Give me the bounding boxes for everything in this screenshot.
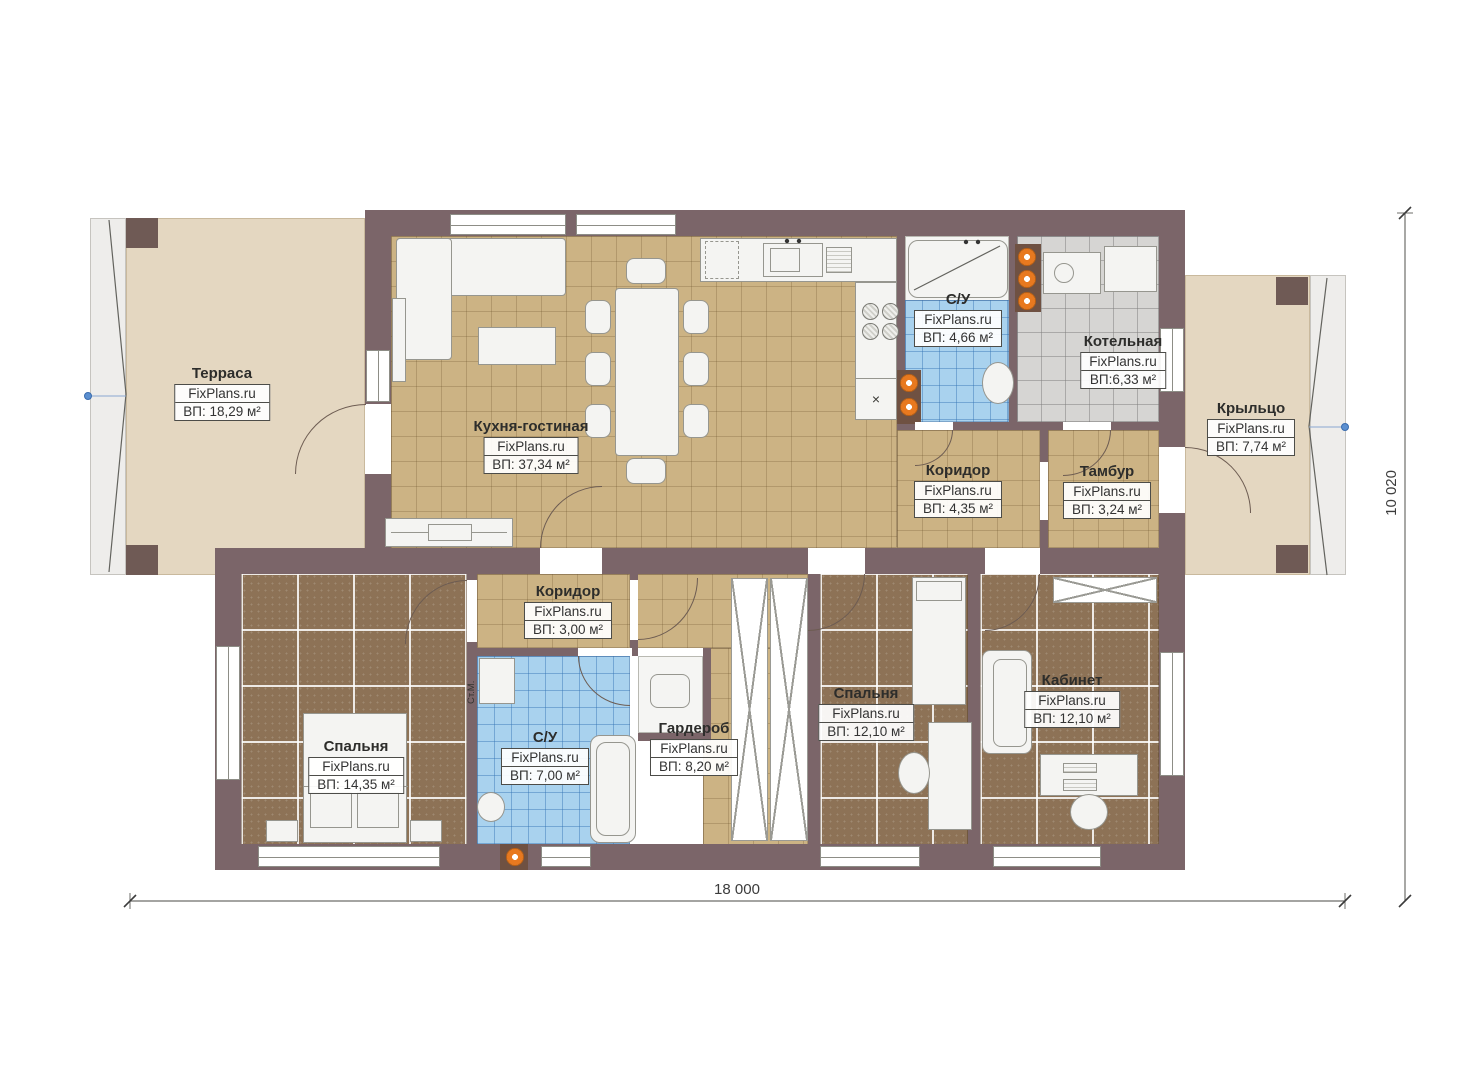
wardrobe-closet xyxy=(731,578,768,841)
room-area: ВП: 37,34 м² xyxy=(484,456,578,473)
room-area: ВП: 18,29 м² xyxy=(175,403,269,420)
watermark: FixPlans.ru xyxy=(525,603,611,621)
room-name: Спальня xyxy=(818,685,914,702)
heating-valve xyxy=(1018,270,1036,288)
door-opening-kitchen-corridor xyxy=(540,548,602,574)
tv-unit xyxy=(392,298,406,382)
drain-board xyxy=(826,247,852,273)
window-bedroom1-left xyxy=(216,646,240,780)
dining-chair xyxy=(585,404,611,438)
door-opening-bedroom2 xyxy=(808,548,865,574)
dimension-tick xyxy=(1339,895,1351,907)
axis-marker-left xyxy=(84,392,92,400)
dining-chair xyxy=(626,258,666,284)
watermark: FixPlans.ru xyxy=(175,385,269,403)
heating-valve xyxy=(1018,292,1036,310)
room-label-corridor-lower: Коридор FixPlans.ruВП: 3,00 м² xyxy=(524,583,612,639)
sideboard-radiator xyxy=(385,518,513,547)
window-living-left xyxy=(366,350,390,402)
room-area: ВП: 4,66 м² xyxy=(915,329,1001,346)
washer-drum xyxy=(1054,263,1074,283)
stove-burner xyxy=(862,323,879,340)
terrace-post-top xyxy=(126,218,158,248)
office-sofa-seat xyxy=(993,659,1027,747)
kitchen-sink-basin xyxy=(770,248,800,272)
kitchen-counter-corner: × xyxy=(855,378,897,420)
door-opening-wardrobe xyxy=(630,580,638,640)
terrace-stairs-strip xyxy=(90,218,126,575)
stove-burner xyxy=(882,303,899,320)
nightstand xyxy=(410,820,442,842)
towel-radiator xyxy=(506,848,524,866)
pillow xyxy=(310,792,352,828)
bathtub-lower xyxy=(590,735,636,843)
toilet xyxy=(650,674,690,708)
porch-post-bottom xyxy=(1276,545,1308,573)
room-name: Гардероб xyxy=(650,720,738,737)
pillow xyxy=(357,792,399,828)
door-opening-bathroom-upper xyxy=(915,422,953,430)
coffee-table xyxy=(478,327,556,365)
floor-plan-canvas: × xyxy=(0,0,1474,1080)
dimension-height-label: 10 020 xyxy=(1383,470,1400,516)
watermark: FixPlans.ru xyxy=(651,740,737,758)
window-office-right xyxy=(1160,652,1184,776)
room-label-corridor-upper: Коридор FixPlans.ruВП: 4,35 м² xyxy=(914,462,1002,518)
window-office-bottom xyxy=(993,846,1101,867)
room-area: ВП: 14,35 м² xyxy=(309,776,403,793)
boiler-counter xyxy=(1104,246,1157,292)
room-name: Спальня xyxy=(308,738,404,755)
room-name: Тамбур xyxy=(1063,463,1151,480)
door-opening-office xyxy=(985,548,1040,574)
room-name: Кабинет xyxy=(1024,672,1120,689)
washing-machine xyxy=(479,658,515,704)
pillow xyxy=(916,581,962,601)
watermark: FixPlans.ru xyxy=(309,758,403,776)
room-label-bedroom2: Спальня FixPlans.ruВП: 12,10 м² xyxy=(818,685,914,741)
office-closet xyxy=(1053,577,1157,603)
desk-bedroom2 xyxy=(928,722,972,830)
heating-valve xyxy=(900,374,918,392)
watermark: FixPlans.ru xyxy=(1208,420,1294,438)
chair-bedroom2 xyxy=(898,752,930,794)
fridge xyxy=(705,241,739,279)
dimension-tick xyxy=(124,895,136,907)
office-chair xyxy=(1070,794,1108,830)
room-area: ВП: 4,35 м² xyxy=(915,500,1001,517)
window-kitchen-top xyxy=(576,214,676,235)
nightstand xyxy=(266,820,298,842)
porch-post-top xyxy=(1276,277,1308,305)
desk-items xyxy=(1063,763,1097,773)
door-opening-bedroom1 xyxy=(467,580,477,642)
dimension-tick xyxy=(1399,895,1411,907)
stove-burner xyxy=(862,303,879,320)
room-area: ВП: 8,20 м² xyxy=(651,758,737,775)
room-name: Кухня-гостиная xyxy=(474,418,589,435)
dining-chair xyxy=(683,300,709,334)
room-label-wardrobe: Гардероб FixPlans.ruВП: 8,20 м² xyxy=(650,720,738,776)
room-name: Крыльцо xyxy=(1207,400,1295,417)
room-area: ВП: 3,24 м² xyxy=(1064,501,1150,518)
room-name: С/У xyxy=(914,291,1002,308)
room-area: ВП: 7,00 м² xyxy=(502,767,588,784)
door-opening-terrace xyxy=(365,404,391,474)
room-label-kitchen-living: Кухня-гостиная FixPlans.ruВП: 37,34 м² xyxy=(474,418,589,474)
room-name: Коридор xyxy=(524,583,612,600)
watermark: FixPlans.ru xyxy=(1064,483,1150,501)
dining-chair xyxy=(683,404,709,438)
room-label-bedroom1: Спальня FixPlans.ruВП: 14,35 м² xyxy=(308,738,404,794)
room-area: ВП: 3,00 м² xyxy=(525,621,611,638)
window-bedroom2-bottom xyxy=(820,846,920,867)
dimension-width-label: 18 000 xyxy=(714,881,760,898)
office-desk xyxy=(1040,754,1138,796)
room-label-terrace: Терраса FixPlans.ruВП: 18,29 м² xyxy=(174,365,270,421)
bed-bedroom2 xyxy=(912,577,966,705)
dining-chair xyxy=(626,458,666,484)
dining-table xyxy=(615,288,679,456)
room-label-porch: Крыльцо FixPlans.ruВП: 7,74 м² xyxy=(1207,400,1295,456)
room-area: ВП: 12,10 м² xyxy=(1025,710,1119,727)
bathtub-inner xyxy=(596,742,630,836)
room-area: ВП: 7,74 м² xyxy=(1208,438,1294,455)
wardrobe-closet xyxy=(770,578,808,841)
room-label-bathroom-upper: С/У FixPlans.ruВП: 4,66 м² xyxy=(914,291,1002,347)
stove-burner xyxy=(882,323,899,340)
dining-chair xyxy=(585,352,611,386)
shower-tub-upper xyxy=(908,240,1008,298)
dining-chair xyxy=(585,300,611,334)
watermark: FixPlans.ru xyxy=(915,311,1001,329)
room-label-bathroom-lower: С/У FixPlans.ruВП: 7,00 м² xyxy=(501,729,589,785)
window-bathroom-lower-bottom xyxy=(541,846,591,867)
door-opening-entrance xyxy=(1159,447,1185,513)
axis-marker-right xyxy=(1341,423,1349,431)
door-opening-boiler xyxy=(1063,422,1111,430)
watermark: FixPlans.ru xyxy=(819,705,913,723)
dimension-tick xyxy=(1399,207,1411,219)
heating-valve xyxy=(900,398,918,416)
boiler-washer xyxy=(1043,252,1101,294)
room-area: ВП: 12,10 м² xyxy=(819,723,913,740)
window-bedroom1-bottom xyxy=(258,846,440,867)
window-living-top xyxy=(450,214,566,235)
room-name: Котельная xyxy=(1080,333,1166,350)
watermark: FixPlans.ru xyxy=(915,482,1001,500)
room-area: ВП:6,33 м² xyxy=(1081,371,1165,388)
watermark: FixPlans.ru xyxy=(502,749,588,767)
door-opening-corridor-vestibule xyxy=(1040,462,1048,520)
room-name: Коридор xyxy=(914,462,1002,479)
heating-valve xyxy=(1018,248,1036,266)
room-label-vestibule: Тамбур FixPlans.ruВП: 3,24 м² xyxy=(1063,463,1151,519)
room-label-office: Кабинет FixPlans.ruВП: 12,10 м² xyxy=(1024,672,1120,728)
washing-machine-label: Ст.М. xyxy=(466,660,477,704)
terrace-post-bottom xyxy=(126,545,158,575)
room-label-boiler: Котельная FixPlans.ruВП:6,33 м² xyxy=(1080,333,1166,389)
room-name: Терраса xyxy=(174,365,270,382)
watermark: FixPlans.ru xyxy=(1081,353,1165,371)
desk-items xyxy=(1063,779,1097,791)
room-name: С/У xyxy=(501,729,589,746)
watermark: FixPlans.ru xyxy=(1025,692,1119,710)
dining-chair xyxy=(683,352,709,386)
watermark: FixPlans.ru xyxy=(484,438,578,456)
sink-lower xyxy=(477,792,505,822)
door-opening-bathroom-lower xyxy=(578,648,632,656)
sink-upper xyxy=(982,362,1014,404)
radiator-core xyxy=(428,524,472,541)
